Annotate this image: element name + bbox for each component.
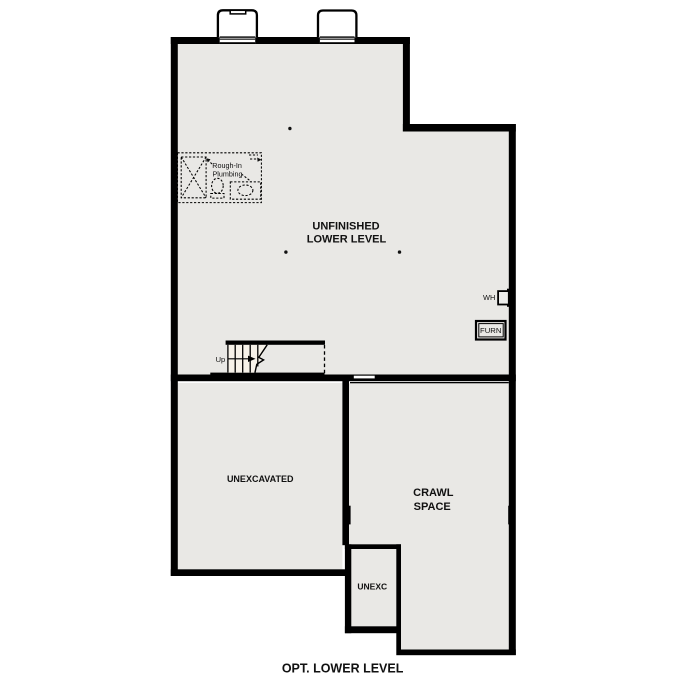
svg-text:UNEXCAVATED: UNEXCAVATED [227, 474, 294, 484]
svg-text:FURN: FURN [480, 326, 501, 335]
svg-text:Plumbing: Plumbing [213, 169, 243, 178]
svg-text:WH: WH [483, 293, 495, 302]
svg-text:Up: Up [216, 355, 226, 364]
svg-text:UNFINISHED: UNFINISHED [312, 220, 379, 232]
svg-text:LOWER LEVEL: LOWER LEVEL [307, 234, 387, 246]
svg-text:SPACE: SPACE [414, 501, 451, 513]
svg-text:OPT. LOWER LEVEL: OPT. LOWER LEVEL [282, 662, 404, 676]
svg-text:CRAWL: CRAWL [413, 487, 454, 499]
svg-text:UNEXC: UNEXC [357, 581, 387, 591]
